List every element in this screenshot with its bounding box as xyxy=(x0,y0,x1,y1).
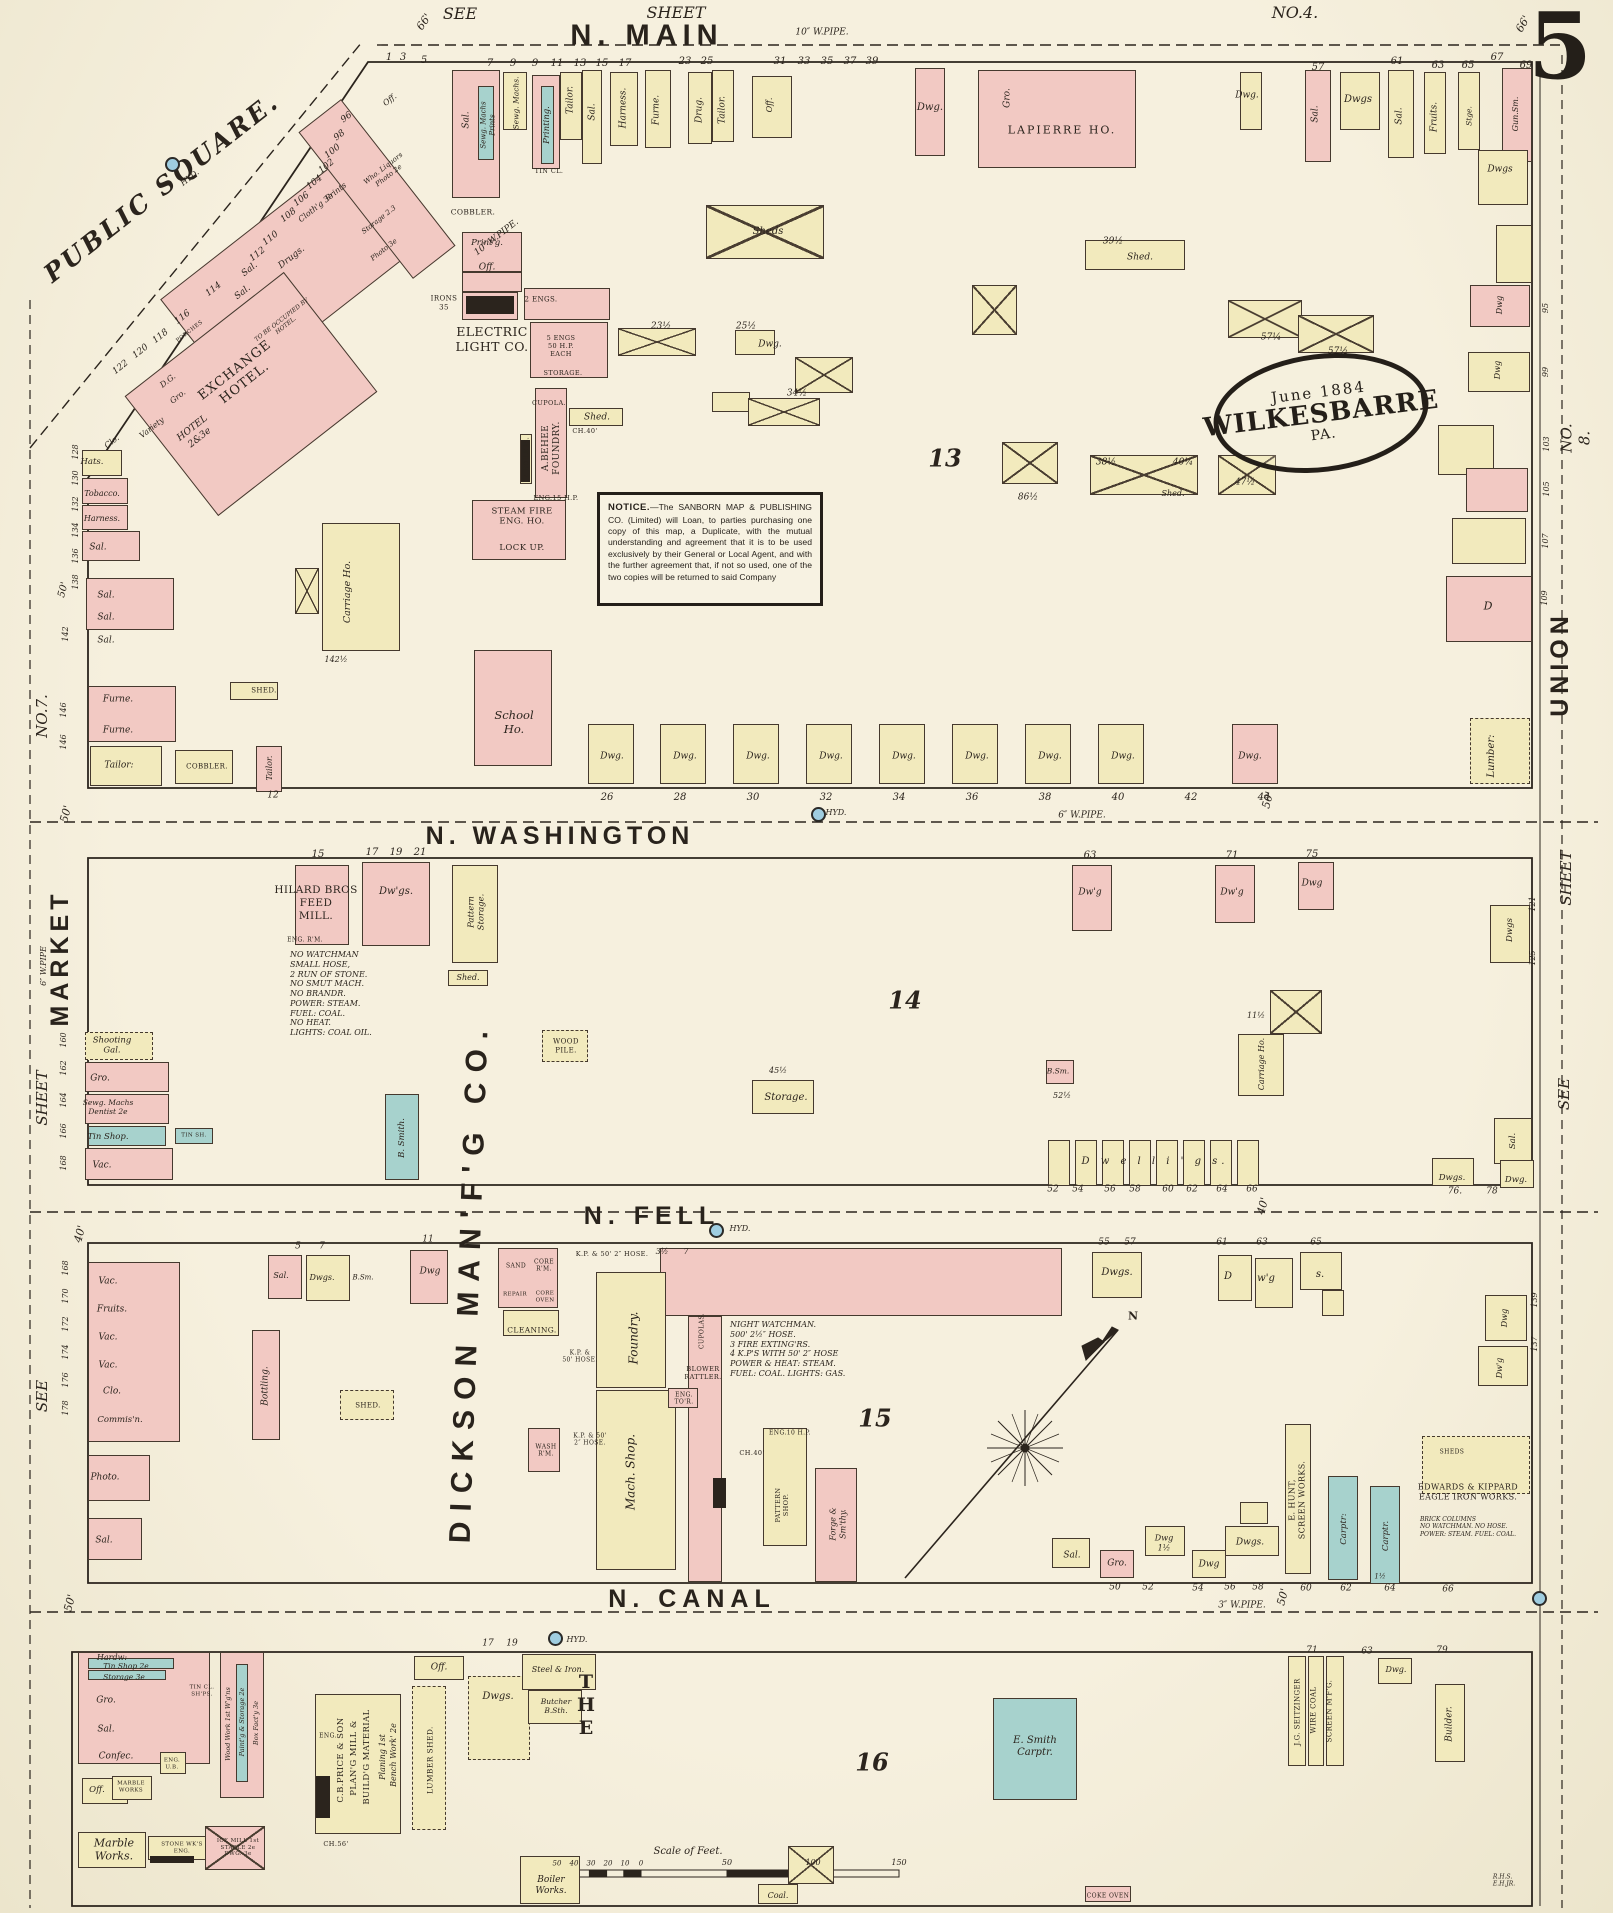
map-annotation: 6″ W.PIPE. xyxy=(1058,811,1106,822)
address-number: 15 xyxy=(596,58,609,70)
address-number: 42 xyxy=(1185,792,1198,804)
building-label: Dwg. xyxy=(600,752,624,763)
building xyxy=(322,523,400,651)
building-label: Dwgs. xyxy=(482,1691,513,1703)
address-number: 168 xyxy=(59,1155,69,1170)
building-label: K.P. & 50' 2″ HOSE. xyxy=(573,1433,607,1448)
street-name: UNION xyxy=(1545,611,1576,717)
address-number: 79 xyxy=(1436,1646,1447,1657)
building-label: Gro. xyxy=(1107,1559,1127,1570)
map-annotation: SEE xyxy=(33,1380,51,1412)
building-label: Dwg. xyxy=(746,752,770,763)
address-number: 71 xyxy=(1226,850,1239,862)
address-number: 164 xyxy=(59,1092,69,1107)
building-label: C.B.PRICE & SON xyxy=(336,1717,346,1802)
building xyxy=(972,285,1017,335)
building-label: Dw'g xyxy=(1220,888,1243,899)
address-number: 139 xyxy=(1530,1292,1540,1307)
building xyxy=(712,392,750,412)
address-number: 60 xyxy=(1300,1584,1311,1595)
building-label: Dwg. xyxy=(1238,752,1262,763)
address-number: 63 xyxy=(1256,1238,1267,1249)
building xyxy=(295,568,319,614)
building-label: Off. xyxy=(431,1663,448,1674)
address-number: 75 xyxy=(1306,849,1319,861)
address-number: 9 xyxy=(510,58,516,70)
building-label: ICE MILL 1st STABLE 2e DWG. 3e xyxy=(217,1838,259,1858)
building-label: Off. xyxy=(89,1785,105,1795)
map-annotation: SEE xyxy=(443,4,477,24)
hydrant-icon xyxy=(709,1223,724,1238)
address-number: 34 xyxy=(893,792,906,804)
building-label: Shed. xyxy=(1127,253,1153,264)
building-label: Tailor. xyxy=(265,756,275,781)
block-number: 15 xyxy=(858,1403,891,1432)
building-label: Steel & Iron. xyxy=(532,1665,584,1675)
building-label: MARBLE WORKS xyxy=(117,1780,145,1793)
building-label: Sal. xyxy=(1395,107,1406,124)
building-label: Shed. xyxy=(1161,489,1184,499)
address-number: 19 xyxy=(506,1639,517,1650)
building-label: Commis'n. xyxy=(97,1415,142,1425)
building-label: Dwgs. xyxy=(1439,1173,1466,1183)
building-label: STONE WK'S ENG. xyxy=(161,1841,203,1854)
building-label: Planing 1st xyxy=(378,1734,388,1780)
building-label: Dw'gs. xyxy=(379,886,413,898)
address-number: 10 xyxy=(621,1860,630,1869)
building xyxy=(688,1316,722,1582)
address-number: 54 xyxy=(1192,1584,1203,1595)
building-label: ENG.15 H.P. xyxy=(533,495,578,503)
address-number: 57¼ xyxy=(1261,333,1281,344)
address-number: 36 xyxy=(966,792,979,804)
building-label: 4 BOILERS. xyxy=(523,437,530,477)
building-label: ENG. TO'R. xyxy=(675,1392,694,1407)
building-label: Storage 3e xyxy=(103,1672,145,1681)
stamp-state: PA. xyxy=(1310,425,1337,444)
street-name: N. FELL xyxy=(584,1201,720,1232)
map-annotation: HYD. xyxy=(567,1635,588,1645)
building-label: Carptr. xyxy=(1381,1521,1391,1551)
building-label: TIN CL. xyxy=(535,168,564,176)
building-label: Bench Work' 2e xyxy=(389,1723,399,1787)
building-label: 2 ENGS. xyxy=(524,296,557,305)
building xyxy=(1002,442,1058,484)
building xyxy=(150,1856,194,1863)
building-label: Tailor. xyxy=(566,86,577,114)
building-label: Harness. xyxy=(84,514,120,524)
building xyxy=(316,1776,330,1818)
address-number: 105 xyxy=(1542,481,1552,496)
building-label: Scale of Feet. xyxy=(653,1846,722,1858)
building-label: Dwg xyxy=(1495,296,1505,314)
address-number: 34½ xyxy=(787,389,807,400)
building-label: ENG. U.B. xyxy=(164,1757,180,1770)
building-label: SAND xyxy=(506,1262,526,1269)
address-number: 130 xyxy=(71,470,81,485)
address-number: 1½ xyxy=(1374,1573,1385,1582)
address-number: 37 xyxy=(844,56,857,68)
address-number: 38½ xyxy=(1096,458,1116,469)
building-label: CORE OVEN xyxy=(536,1290,555,1303)
address-number: 39½ xyxy=(1103,237,1123,248)
address-number: 57 xyxy=(1124,1238,1135,1249)
building xyxy=(1452,518,1526,564)
address-number: 55 xyxy=(1098,1238,1109,1249)
building-label: Sal. xyxy=(1311,105,1322,122)
street-name: N. MAIN xyxy=(570,18,723,53)
building-label: Sal. xyxy=(1063,1551,1080,1562)
building-label: CH.40' xyxy=(572,428,597,436)
address-number: 65 xyxy=(1462,60,1475,72)
building-label: Pattern Storage. xyxy=(467,894,488,931)
building xyxy=(1478,150,1528,205)
address-number: 7 xyxy=(319,1242,325,1253)
address-number: 11½ xyxy=(1247,1011,1265,1021)
address-number: 71 xyxy=(1306,1646,1317,1657)
building xyxy=(1322,1290,1344,1316)
building-label: ENG. xyxy=(319,1732,337,1739)
building-label: Dw'g xyxy=(1078,888,1101,899)
building-label: Sal. xyxy=(89,543,106,554)
address-number: 57 xyxy=(1312,62,1325,74)
building-label: CH.56' xyxy=(323,1841,348,1849)
address-number: 19 xyxy=(390,847,403,859)
address-number: 52 xyxy=(1047,1185,1058,1196)
sanborn-map-sheet: 5 June 1884 WILKESBARRE PA. NOTICE.—The … xyxy=(0,0,1613,1913)
building-label: Dwg. xyxy=(892,752,916,763)
building-label: Dwgs. xyxy=(1236,1538,1264,1549)
building-label: SHED. xyxy=(251,687,277,696)
building-label: K.P. & 50' HOSE. xyxy=(562,1350,597,1365)
building-label: E. HUNT, SCREEN WORKS. xyxy=(1287,1461,1307,1540)
building-label: Bottling. xyxy=(261,1366,272,1405)
address-number: 17 xyxy=(482,1639,493,1650)
address-number: 30 xyxy=(587,1860,596,1869)
building-label: BUILD'G MATERIAL xyxy=(362,1709,372,1804)
address-number: 23 xyxy=(679,56,692,68)
address-number: 21 xyxy=(414,847,427,859)
building-label: SHED. xyxy=(355,1402,381,1411)
address-number: 160 xyxy=(59,1032,69,1047)
building-label: Foundry. xyxy=(627,1312,642,1365)
building-label: Tailor. xyxy=(718,96,729,124)
building-label: Print'g. xyxy=(471,238,503,248)
address-number: 5 xyxy=(421,55,427,67)
building-label: Sewg. Machs Prints xyxy=(479,101,496,148)
building-label: Vac. xyxy=(99,1277,118,1288)
map-annotation: HYD. xyxy=(826,808,847,818)
address-number: 3 xyxy=(400,52,406,64)
map-annotation: 6″ W.PIPE xyxy=(39,946,49,986)
building-label: Shed. xyxy=(456,973,479,983)
building-label: Paint'g & Storage 2e xyxy=(239,1688,247,1757)
address-number: 15 xyxy=(312,849,325,861)
building-label: Dwg. xyxy=(673,752,697,763)
address-number: 39 xyxy=(866,56,879,68)
building-label: Vac. xyxy=(99,1361,118,1372)
building-label: Dwg xyxy=(1500,1309,1510,1327)
building-label: TIN SH. xyxy=(181,1133,207,1140)
building-label: Dwg. xyxy=(1038,752,1062,763)
building-label: Vac. xyxy=(93,1161,112,1172)
scale-bar xyxy=(555,1870,899,1877)
building-label: Gro. xyxy=(96,1696,116,1707)
building-label: ELECTRIC LIGHT CO. xyxy=(455,324,528,355)
building-label: School Ho. xyxy=(494,708,533,736)
address-number: 45½ xyxy=(769,1066,787,1076)
building-label: IRONS 35 xyxy=(431,294,458,311)
address-number: 172 xyxy=(61,1316,71,1331)
building-label: Dwg xyxy=(420,1267,441,1278)
address-number: 63 xyxy=(1432,60,1445,72)
address-number: 170 xyxy=(61,1288,71,1303)
building-label: Dwgs. xyxy=(309,1273,334,1283)
building xyxy=(1048,1140,1070,1186)
block-number: 13 xyxy=(928,443,961,472)
address-number: 40 xyxy=(570,1860,579,1869)
building xyxy=(748,398,820,426)
building xyxy=(1470,718,1530,784)
address-number: 146 xyxy=(59,734,69,749)
building-label: Gro. xyxy=(90,1074,110,1085)
building-label: E. Smith Carptr. xyxy=(1013,1735,1057,1759)
building-label: Shed. xyxy=(584,413,610,424)
building-label: Dwg xyxy=(1493,361,1503,379)
address-number: 52½ xyxy=(1053,1091,1071,1101)
building-label: Tobacco. xyxy=(84,489,120,499)
building-label: EDWARDS & KIPPARD EAGLE IRON WORKS. xyxy=(1418,1482,1518,1502)
building-label: N xyxy=(1128,1309,1138,1322)
building xyxy=(1466,468,1528,512)
building-label: Dwgs xyxy=(1487,165,1512,176)
building-label: Sal. xyxy=(97,591,114,602)
address-number: 26 xyxy=(601,792,614,804)
address-number: 31 xyxy=(774,56,787,68)
building-label: Sal. xyxy=(273,1271,288,1281)
building-label: STORAGE. xyxy=(544,370,583,378)
building-label: Off. xyxy=(479,263,496,274)
building-label: ENG.10 H.P. xyxy=(769,1429,811,1436)
building-label: D xyxy=(1484,599,1493,612)
building-label: w'g xyxy=(1257,1273,1275,1285)
address-number: 63 xyxy=(1084,850,1097,862)
address-number: 40¼ xyxy=(1173,458,1193,469)
building-label: Dwg xyxy=(1302,879,1323,890)
building-label: Dwg. xyxy=(1111,752,1135,763)
building-label: Wood Work 1st W'g'ns xyxy=(225,1687,233,1761)
building-label: Fruits. xyxy=(1430,102,1441,132)
info-note: NIGHT WATCHMAN. 500' 2½″ HOSE. 3 FIRE EX… xyxy=(730,1320,845,1379)
address-number: 78 xyxy=(1486,1187,1497,1198)
address-number: 65 xyxy=(1310,1238,1321,1249)
info-note: NO WATCHMAN SMALL HOSE, 2 RUN OF STONE. … xyxy=(290,950,372,1038)
building-label: Lumber: xyxy=(1486,734,1498,777)
address-number: 58 xyxy=(1252,1583,1263,1594)
building-label: Furne. xyxy=(103,695,133,706)
hydrant-icon xyxy=(548,1631,563,1646)
address-number: 56 xyxy=(1224,1583,1235,1594)
address-number: 11 xyxy=(551,58,564,70)
address-number: 109 xyxy=(1540,590,1550,605)
address-number: 13 xyxy=(574,58,587,70)
building-label: s. xyxy=(1316,1269,1324,1281)
sheet-number: 5 xyxy=(1528,0,1592,92)
building-label: BLOWER RATTLER. xyxy=(684,1366,721,1382)
address-number: 54 xyxy=(1072,1185,1083,1196)
building-label: B. Smith. xyxy=(397,1118,407,1158)
building-label: Tin Shop. xyxy=(87,1132,128,1142)
building xyxy=(468,1676,530,1760)
address-number: 150 xyxy=(891,1858,906,1868)
hydrant-icon xyxy=(1532,1591,1547,1606)
address-number: 63 xyxy=(1361,1647,1372,1658)
building-label: LUMBER SHED. xyxy=(425,1726,434,1794)
building xyxy=(713,1478,726,1508)
address-number: 33 xyxy=(798,56,811,68)
address-number: 136 xyxy=(71,548,81,563)
building-label: TIN CL. SH'PS. xyxy=(190,1684,215,1697)
building-label: Sal. xyxy=(1508,1133,1518,1149)
building-label: Butcher B.Sth. xyxy=(541,1697,571,1715)
address-number: 103 xyxy=(1542,436,1552,451)
building-label: COBBLER. xyxy=(451,207,496,216)
building-label: T H E xyxy=(577,1671,595,1741)
street-name: MARKET xyxy=(45,890,76,1027)
building-label: Dwg. xyxy=(1235,91,1259,102)
street-name: N. WASHINGTON xyxy=(426,821,695,852)
building-label: ENG. R'M. xyxy=(287,936,323,943)
info-note: R.H.S. E.H.JR. xyxy=(1493,1874,1515,1889)
address-number: 9 xyxy=(532,58,538,70)
building-label: LAPIERRE HO. xyxy=(1008,123,1117,136)
building-label: Carptr: xyxy=(1339,1513,1349,1544)
address-number: 38 xyxy=(1039,792,1052,804)
hydrant-icon xyxy=(165,157,180,172)
building-label: Photo. xyxy=(90,1473,119,1484)
address-number: 0 xyxy=(639,1860,643,1869)
map-annotation: NO.4. xyxy=(1272,3,1319,23)
building-label: Boiler Works. xyxy=(535,1875,566,1897)
map-annotation: SEE xyxy=(1555,1078,1573,1110)
address-number: 138 xyxy=(71,574,81,589)
address-number: 67 xyxy=(1491,52,1504,64)
address-number: 64 xyxy=(1384,1584,1395,1595)
building-label: Carriage Ho. xyxy=(1257,1038,1267,1090)
building-label: Coal. xyxy=(768,1891,789,1901)
building-label: COKE OVEN xyxy=(1087,1892,1130,1899)
building-label: Dwg. xyxy=(917,102,943,114)
building-label: REPAIR xyxy=(503,1292,527,1299)
building-label: HILARD BROS FEED MILL. xyxy=(274,884,357,922)
address-number: 66 xyxy=(1246,1185,1257,1196)
address-number: 100 xyxy=(805,1858,820,1868)
building xyxy=(1240,1502,1268,1524)
address-number: 1 xyxy=(386,52,392,64)
address-number: 86½ xyxy=(1018,493,1038,504)
building-label: B.Sm. xyxy=(1047,1066,1070,1075)
building-label: WIRE COAL xyxy=(1310,1687,1319,1734)
building-label: LOCK UP. xyxy=(499,543,544,553)
building-label: SCREEN M'F'G. xyxy=(1326,1680,1335,1743)
building-label: WOOD PILE. xyxy=(553,1037,579,1054)
address-number: 50 xyxy=(553,1860,562,1869)
map-annotation: NO.7. xyxy=(33,694,51,738)
building-label: 5 ENGS 50 H.P. EACH xyxy=(547,335,576,359)
building xyxy=(978,70,1136,168)
address-number: 162 xyxy=(59,1060,69,1075)
address-number: 17 xyxy=(619,58,632,70)
building xyxy=(1270,990,1322,1034)
address-number: 5 xyxy=(295,1242,301,1253)
address-number: 47½ xyxy=(1235,478,1255,489)
building-label: Mach. Shop. xyxy=(624,1434,639,1510)
address-number: 44 xyxy=(1258,792,1271,804)
address-number: 99 xyxy=(1541,367,1551,377)
building-label: Confec. xyxy=(99,1752,134,1763)
building-label: Carriage Ho. xyxy=(342,561,354,623)
address-number: 60 xyxy=(1162,1185,1173,1196)
address-number: 58 xyxy=(1129,1185,1140,1196)
building-label: WASH R'M. xyxy=(535,1444,556,1459)
building-label: SHEDS xyxy=(1440,1448,1465,1455)
building-label: Builder. xyxy=(1445,1706,1456,1741)
address-number: 134 xyxy=(71,522,81,537)
map-annotation: NO. 8. xyxy=(1558,420,1595,457)
address-number: 25 xyxy=(701,56,714,68)
building-label: Sewg. Machs Dentist 2e xyxy=(83,1098,134,1116)
address-number: 11 xyxy=(422,1235,433,1246)
building-label: Dwg. xyxy=(1505,1175,1527,1185)
address-number: 146 xyxy=(59,702,69,717)
address-number: 95 xyxy=(1541,303,1551,313)
address-number: 174 xyxy=(61,1344,71,1359)
building-label: Dwgs xyxy=(1344,94,1372,106)
address-number: 3½ xyxy=(656,1247,669,1257)
address-number: 142½ xyxy=(324,655,347,665)
address-number: 142 xyxy=(61,626,71,641)
address-number: 132 xyxy=(71,496,81,511)
map-annotation: 3″ W.PIPE. xyxy=(1218,1601,1266,1612)
address-number: 166 xyxy=(59,1123,69,1138)
building xyxy=(1496,225,1532,283)
building-label: Sewg. Machs. xyxy=(511,77,520,130)
building xyxy=(660,1248,1062,1316)
building-label: Dwgs xyxy=(1505,918,1515,942)
building-label: COBBLER. xyxy=(186,763,228,772)
publisher-notice: NOTICE.—The SANBORN MAP & PUBLISHING CO.… xyxy=(597,492,823,606)
building-label: Sal. xyxy=(462,111,473,128)
info-note: BRICK COLUMNS NO WATCHMAN. NO HOSE. POWE… xyxy=(1420,1516,1516,1538)
building-label: D w e l l i ' g s. xyxy=(1082,1156,1229,1168)
building-label: Hats. xyxy=(81,457,104,467)
building-label: B.Sm. xyxy=(352,1274,373,1283)
building-label: CH.40' xyxy=(739,1450,764,1458)
building-label: Sal. xyxy=(97,613,114,624)
map-annotation: 10″ W.PIPE. xyxy=(795,28,848,39)
building-label: Dwg. xyxy=(758,340,782,351)
building-label: Sal. xyxy=(97,636,114,647)
address-number: 12 xyxy=(267,791,278,802)
building-label: CUPOLAS. xyxy=(698,1313,705,1349)
address-number: 20 xyxy=(604,1860,613,1869)
building-label: Harness. xyxy=(619,88,630,129)
address-number: 178 xyxy=(61,1400,71,1415)
address-number: 23½ xyxy=(651,322,671,333)
building-label: Off. xyxy=(765,98,775,113)
building-label: Printing. xyxy=(542,106,552,144)
address-number: 64 xyxy=(1216,1185,1227,1196)
